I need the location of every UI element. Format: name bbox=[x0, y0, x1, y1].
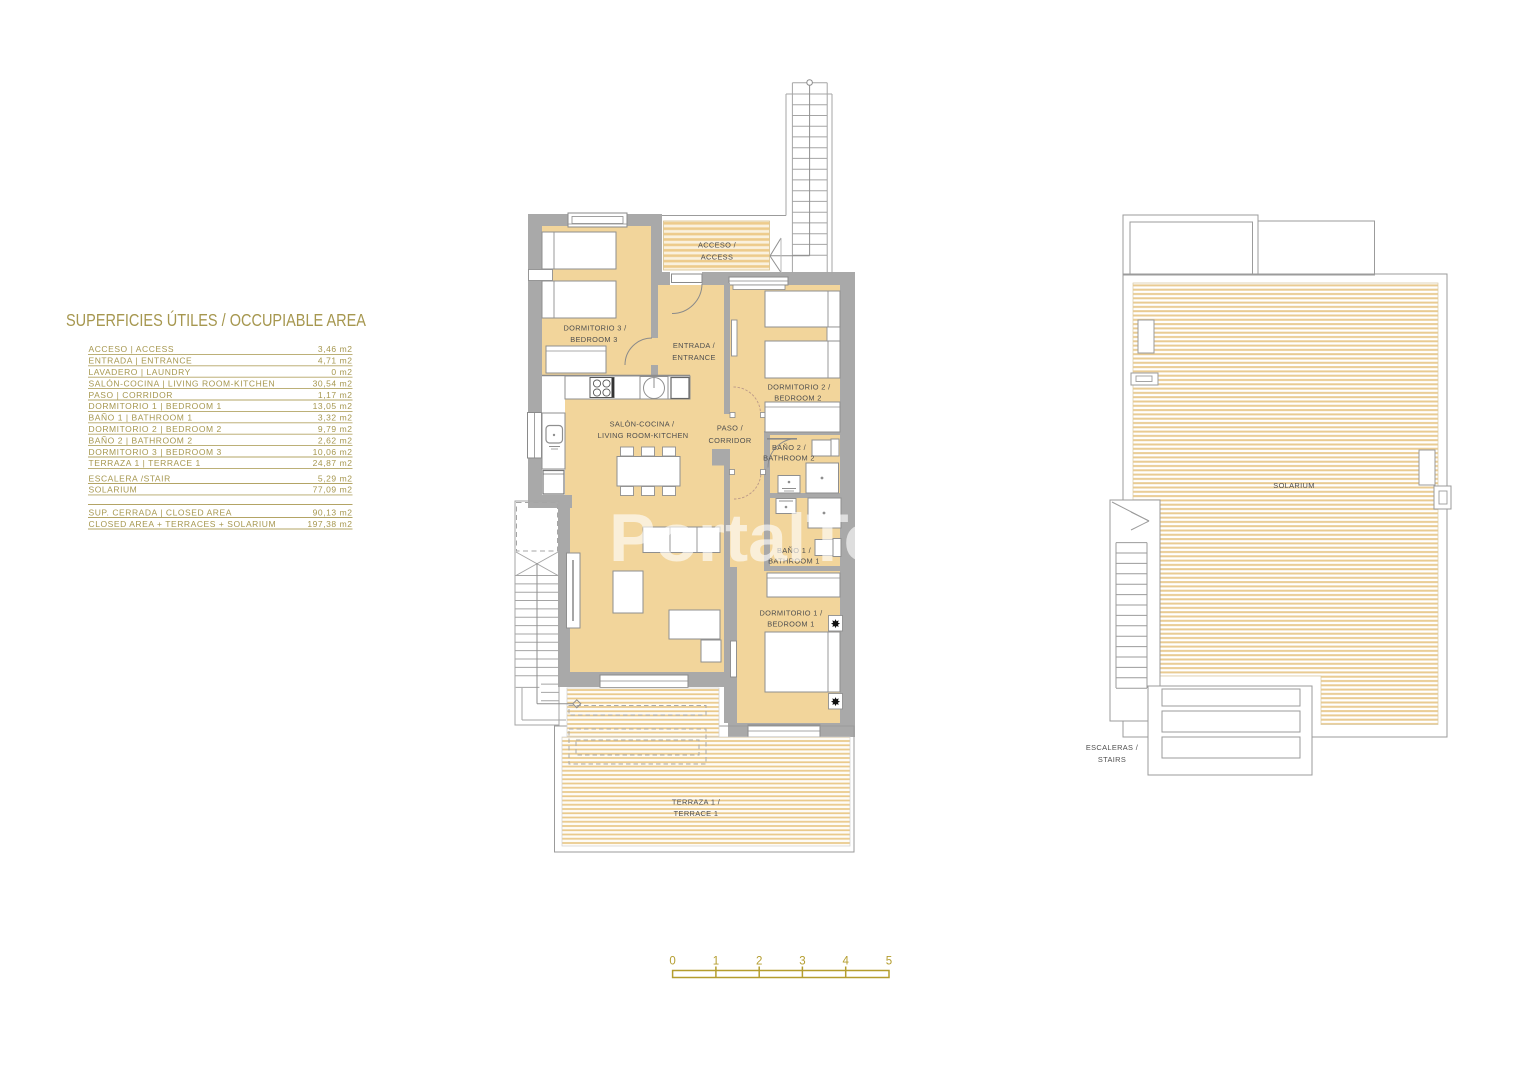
svg-text:BEDROOM 2: BEDROOM 2 bbox=[774, 394, 822, 403]
svg-text:ACCESO | ACCESS: ACCESO | ACCESS bbox=[89, 344, 175, 354]
svg-text:PASO | CORRIDOR: PASO | CORRIDOR bbox=[89, 390, 173, 400]
svg-text:BEDROOM 1: BEDROOM 1 bbox=[767, 620, 815, 629]
svg-text:5: 5 bbox=[886, 956, 892, 968]
svg-text:SUP. CERRADA | CLOSED AREA: SUP. CERRADA | CLOSED AREA bbox=[89, 507, 232, 517]
svg-text:1,17 m2: 1,17 m2 bbox=[318, 390, 353, 400]
svg-text:2,62 m2: 2,62 m2 bbox=[318, 435, 353, 445]
svg-text:0 m2: 0 m2 bbox=[331, 367, 352, 377]
svg-text:ESCALERAS /: ESCALERAS / bbox=[1086, 743, 1139, 752]
svg-text:BATHROOM 2: BATHROOM 2 bbox=[763, 454, 815, 463]
svg-text:90,13 m2: 90,13 m2 bbox=[313, 507, 353, 517]
svg-text:✸: ✸ bbox=[830, 695, 840, 709]
svg-text:4,71 m2: 4,71 m2 bbox=[318, 356, 353, 366]
svg-text:30,54 m2: 30,54 m2 bbox=[313, 378, 353, 388]
svg-text:0: 0 bbox=[669, 956, 675, 968]
svg-text:13,05 m2: 13,05 m2 bbox=[313, 401, 353, 411]
svg-text:ACCESO /: ACCESO / bbox=[698, 241, 737, 250]
svg-text:TERRACE 1: TERRACE 1 bbox=[674, 809, 719, 818]
svg-text:5,29 m2: 5,29 m2 bbox=[318, 473, 353, 483]
svg-text:DORMITORIO 1 | BEDROOM 1: DORMITORIO 1 | BEDROOM 1 bbox=[89, 401, 222, 411]
svg-text:24,87 m2: 24,87 m2 bbox=[313, 458, 353, 468]
svg-text:ENTRADA | ENTRANCE: ENTRADA | ENTRANCE bbox=[89, 356, 193, 366]
svg-text:2: 2 bbox=[756, 956, 762, 968]
svg-text:BEDROOM 3: BEDROOM 3 bbox=[570, 335, 618, 344]
svg-text:DORMITORIO 1 /: DORMITORIO 1 / bbox=[759, 609, 823, 618]
svg-text:STAIRS: STAIRS bbox=[1098, 755, 1126, 764]
svg-text:ACCESS: ACCESS bbox=[701, 253, 734, 262]
svg-text:BAÑO 1 | BATHROOM 1: BAÑO 1 | BATHROOM 1 bbox=[89, 413, 193, 423]
svg-text:ESCALERA /STAIR: ESCALERA /STAIR bbox=[89, 473, 171, 483]
svg-text:SOLARIUM: SOLARIUM bbox=[1273, 481, 1314, 490]
svg-text:LIVING ROOM-KITCHEN: LIVING ROOM-KITCHEN bbox=[598, 431, 689, 440]
svg-text:1: 1 bbox=[713, 956, 719, 968]
svg-text:3: 3 bbox=[799, 956, 805, 968]
svg-text:TERRAZA 1 | TERRACE 1: TERRAZA 1 | TERRACE 1 bbox=[89, 458, 201, 468]
svg-text:DORMITORIO 3 | BEDROOM 3: DORMITORIO 3 | BEDROOM 3 bbox=[89, 447, 222, 457]
svg-text:3,32 m2: 3,32 m2 bbox=[318, 413, 353, 423]
svg-text:4: 4 bbox=[842, 956, 849, 968]
svg-text:✸: ✸ bbox=[830, 617, 840, 631]
svg-text:CLOSED AREA + TERRACES + SOLAR: CLOSED AREA + TERRACES + SOLARIUM bbox=[89, 519, 277, 529]
svg-text:LAVADERO | LAUNDRY: LAVADERO | LAUNDRY bbox=[89, 367, 191, 377]
svg-text:DORMITORIO 3 /: DORMITORIO 3 / bbox=[563, 324, 627, 333]
svg-text:SALÓN-COCINA | LIVING ROOM-KIT: SALÓN-COCINA | LIVING ROOM-KITCHEN bbox=[89, 378, 276, 388]
svg-text:SOLARIUM: SOLARIUM bbox=[89, 485, 138, 495]
svg-text:CORRIDOR: CORRIDOR bbox=[708, 436, 751, 445]
svg-text:SUPERFICIES ÚTILES / OCCUPIABL: SUPERFICIES ÚTILES / OCCUPIABLE AREA bbox=[66, 309, 366, 330]
svg-text:TERRAZA 1 /: TERRAZA 1 / bbox=[672, 798, 721, 807]
svg-text:3,46 m2: 3,46 m2 bbox=[318, 344, 353, 354]
svg-text:PASO /: PASO / bbox=[717, 424, 744, 433]
svg-text:77,09 m2: 77,09 m2 bbox=[313, 485, 353, 495]
svg-text:197,38 m2: 197,38 m2 bbox=[307, 519, 352, 529]
svg-text:9,79 m2: 9,79 m2 bbox=[318, 424, 353, 434]
svg-text:BAÑO 2 | BATHROOM 2: BAÑO 2 | BATHROOM 2 bbox=[89, 435, 193, 445]
svg-text:DORMITORIO 2 | BEDROOM 2: DORMITORIO 2 | BEDROOM 2 bbox=[89, 424, 222, 434]
svg-text:DORMITORIO 2 /: DORMITORIO 2 / bbox=[767, 383, 831, 392]
svg-text:ENTRANCE: ENTRANCE bbox=[672, 353, 715, 362]
svg-text:BAÑO 2 /: BAÑO 2 / bbox=[772, 443, 807, 452]
svg-text:ENTRADA /: ENTRADA / bbox=[673, 341, 716, 350]
svg-text:PortalTo: PortalTo bbox=[609, 500, 886, 576]
svg-text:10,06 m2: 10,06 m2 bbox=[313, 447, 353, 457]
svg-text:SALÓN-COCINA /: SALÓN-COCINA / bbox=[610, 420, 675, 429]
